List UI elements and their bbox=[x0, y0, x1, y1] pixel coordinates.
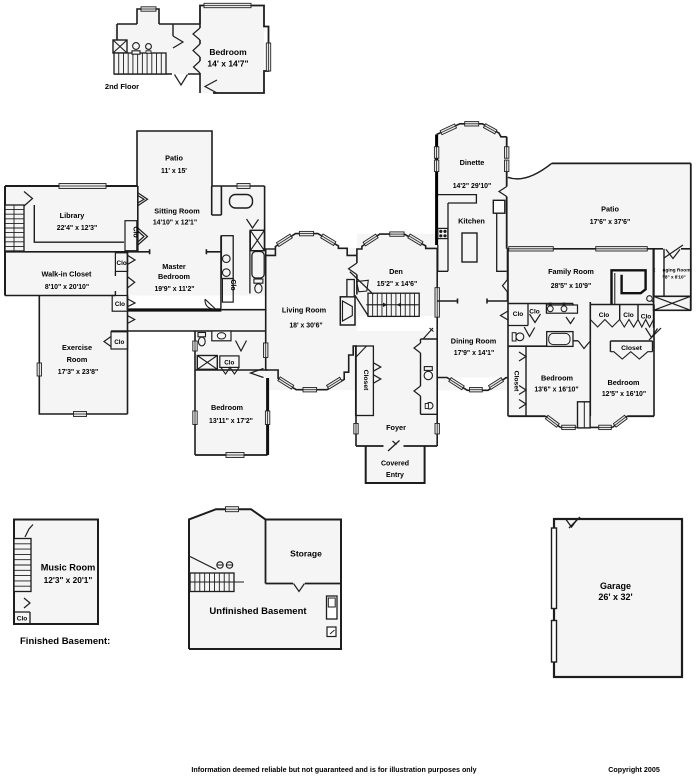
svg-text:Dining Room: Dining Room bbox=[451, 337, 497, 346]
svg-text:Clo: Clo bbox=[132, 226, 139, 237]
svg-text:Family Room: Family Room bbox=[548, 267, 594, 276]
svg-text:Walk-in Closet: Walk-in Closet bbox=[41, 270, 92, 279]
svg-text:12'3" x 20'1": 12'3" x 20'1" bbox=[44, 575, 93, 585]
svg-text:Sitting Room: Sitting Room bbox=[154, 207, 200, 216]
svg-text:19'9" x 11'2": 19'9" x 11'2" bbox=[154, 286, 194, 293]
svg-text:Entry: Entry bbox=[386, 472, 404, 479]
svg-text:Clo: Clo bbox=[599, 312, 610, 319]
svg-text:Clo: Clo bbox=[114, 339, 124, 346]
svg-text:13'11" x 17'2": 13'11" x 17'2" bbox=[209, 418, 253, 425]
svg-text:Closet: Closet bbox=[513, 371, 520, 393]
svg-text:Clo: Clo bbox=[513, 311, 524, 318]
svg-text:Kitchen: Kitchen bbox=[458, 217, 485, 226]
svg-text:Library: Library bbox=[60, 211, 86, 220]
svg-text:Closet: Closet bbox=[362, 370, 369, 392]
svg-text:2nd Floor: 2nd Floor bbox=[105, 82, 139, 91]
svg-text:Dinette: Dinette bbox=[460, 158, 485, 167]
svg-text:Clo: Clo bbox=[117, 260, 127, 267]
svg-text:11' x 15': 11' x 15' bbox=[161, 168, 187, 175]
svg-text:Bedroom: Bedroom bbox=[158, 272, 191, 281]
svg-text:Exercise: Exercise bbox=[62, 343, 92, 352]
svg-text:17'6" x 37'6": 17'6" x 37'6" bbox=[590, 219, 630, 226]
svg-text:Clo: Clo bbox=[115, 301, 125, 308]
svg-text:Bedroom: Bedroom bbox=[211, 403, 244, 412]
svg-text:Bedroom: Bedroom bbox=[209, 47, 247, 57]
svg-text:17'3" x 23'8": 17'3" x 23'8" bbox=[58, 369, 98, 376]
svg-text:Music Room: Music Room bbox=[41, 563, 96, 573]
svg-text:Room: Room bbox=[67, 355, 88, 364]
svg-text:18' x 30'6": 18' x 30'6" bbox=[289, 323, 322, 330]
svg-text:26' x 32': 26' x 32' bbox=[598, 592, 632, 602]
svg-text:Patio: Patio bbox=[601, 205, 619, 214]
svg-text:Finished Basement:: Finished Basement: bbox=[20, 636, 110, 647]
svg-text:Clo: Clo bbox=[17, 616, 28, 623]
svg-text:22'4" x 12'3": 22'4" x 12'3" bbox=[57, 225, 97, 232]
svg-text:Clo: Clo bbox=[623, 312, 634, 319]
svg-text:14'10" x 12'1": 14'10" x 12'1" bbox=[153, 220, 197, 227]
svg-text:14'2" 29'10": 14'2" 29'10" bbox=[453, 183, 492, 190]
svg-text:Living Room: Living Room bbox=[282, 306, 327, 315]
svg-text:13'6" x 16'10": 13'6" x 16'10" bbox=[534, 387, 578, 394]
svg-text:Patio: Patio bbox=[165, 154, 183, 163]
svg-text:15'2" x 14'6": 15'2" x 14'6" bbox=[377, 281, 417, 288]
svg-text:17'9" x 14'1": 17'9" x 14'1" bbox=[454, 350, 494, 357]
svg-text:Clo: Clo bbox=[229, 279, 236, 290]
svg-text:Clo: Clo bbox=[529, 309, 540, 316]
svg-text:Bedroom: Bedroom bbox=[607, 378, 640, 387]
svg-text:14' x 14'7": 14' x 14'7" bbox=[207, 59, 248, 69]
svg-text:Master: Master bbox=[162, 262, 186, 271]
svg-text:Foyer: Foyer bbox=[386, 423, 406, 432]
svg-text:Information deemed reliable bu: Information deemed reliable but not guar… bbox=[191, 766, 476, 774]
svg-text:28'5" x 10'9": 28'5" x 10'9" bbox=[551, 283, 591, 290]
svg-text:7'8" x 8'10": 7'8" x 8'10" bbox=[661, 274, 685, 279]
svg-text:Garage: Garage bbox=[600, 581, 631, 591]
svg-text:Closet: Closet bbox=[621, 345, 643, 352]
svg-text:8'10" x 20'10": 8'10" x 20'10" bbox=[45, 284, 89, 291]
svg-text:Covered: Covered bbox=[381, 461, 409, 468]
svg-text:Copyright 2005: Copyright 2005 bbox=[608, 766, 660, 774]
svg-text:Bedroom: Bedroom bbox=[541, 374, 574, 383]
svg-text:12'5" x 16'10": 12'5" x 16'10" bbox=[602, 391, 646, 398]
svg-text:Storage: Storage bbox=[290, 549, 322, 559]
svg-text:Clo: Clo bbox=[224, 360, 234, 367]
svg-text:Unfinished Basement: Unfinished Basement bbox=[209, 606, 307, 617]
svg-text:Den: Den bbox=[389, 267, 403, 276]
